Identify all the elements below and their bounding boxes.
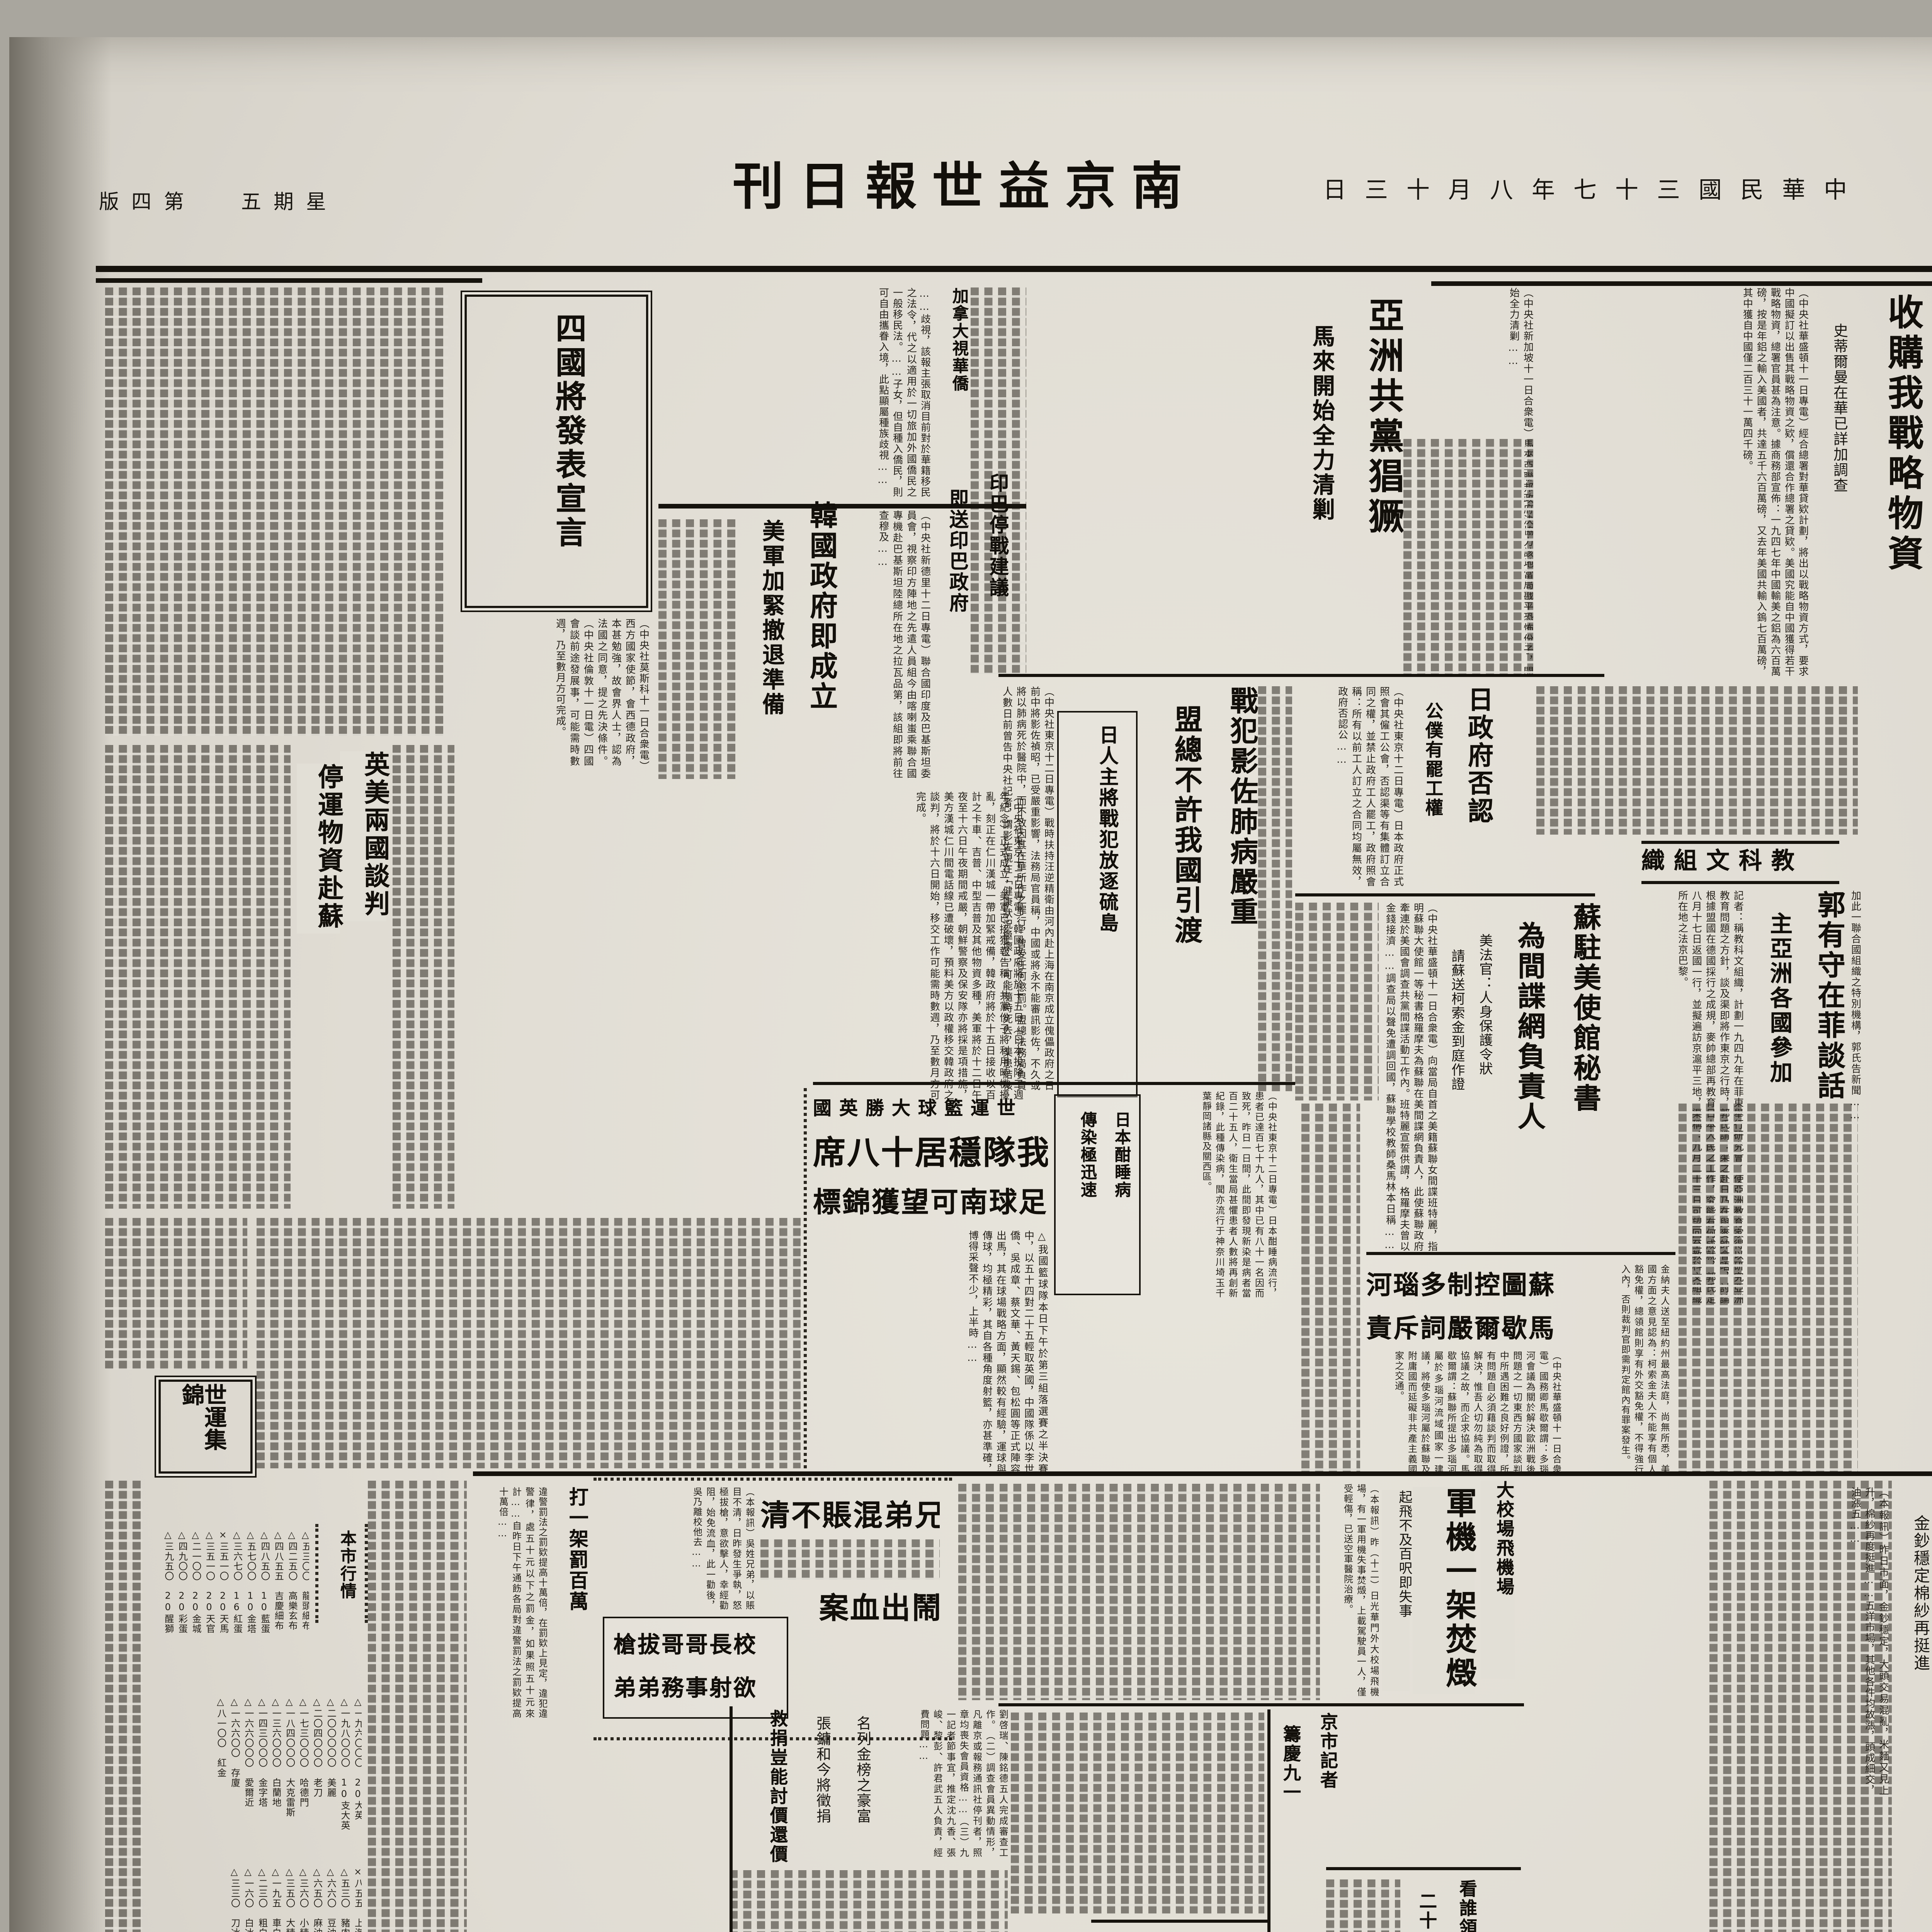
brothers-boxed-sub: 槍拔哥哥長校 弟弟務事射欲 (603, 1617, 788, 1719)
unesco-section-label: 織組文科教 (1641, 841, 1839, 884)
divider-rule (1326, 1867, 1521, 1870)
sleeping-sickness-box: 日本酣睡病 傳染極迅速 (1054, 1094, 1141, 1295)
brothers-boxed1: 槍拔哥哥長校 (614, 1628, 777, 1662)
body-text-unreadable (105, 287, 448, 736)
olympics-digest-label: 世運集錦 (190, 1383, 224, 1470)
body-text-unreadable (730, 1870, 1008, 1932)
korea-headline: 韓國政府即成立 (782, 501, 835, 764)
divider-rule (813, 1082, 1295, 1085)
japan-denies-headline: 日政府否認 (1444, 686, 1490, 856)
body-text-unreadable (958, 1484, 1320, 1700)
body-text-unreadable (105, 745, 291, 1209)
rescue-sub1: 名列金榜之豪富 (835, 1716, 869, 1855)
rescue-headline: 救捐豈能討價還價 (748, 1709, 788, 1864)
airfield-kicker: 大校場飛機場 (1481, 1481, 1515, 1679)
market-item: △一四三〇〇〇 金字塔 (256, 1697, 265, 1855)
korea-subhead: 美軍加緊撤退準備 (739, 519, 782, 782)
reporters-headline: 京市記者 (1304, 1713, 1338, 1821)
market-item: △五三〇〇 龍頭細布 (299, 1530, 309, 1685)
wavy-separator (804, 1088, 813, 1475)
market-item: △三六七〇 16紅蛋 (231, 1530, 240, 1685)
airfield-subhead: 起飛不及百呎即失事 (1382, 1490, 1410, 1691)
divider-rule (1091, 1920, 1267, 1923)
soviet-spy-body: （中央社華盛頓十一日合衆電）向當局自首之美籍蘇聯女間諜班特麗，指明蘇聯大使館一等… (1382, 903, 1437, 1252)
market-item: △四九〇〇 20彩蛋 (176, 1530, 185, 1685)
market-item: △一七三〇〇〇 哈德門 (297, 1697, 307, 1855)
market-band-2: △一九六〇〇〇 20大英△一九八〇〇〇 10支大英△二〇〇〇〇〇 美麗△二〇四〇… (145, 1697, 362, 1855)
asia-communists-headline: 亞洲共黨猖獗 (1332, 297, 1400, 668)
brothers-headline2: 案血出鬧 (819, 1586, 943, 1626)
lottery-land-subhead: 二十五日搖彩 (1406, 1892, 1437, 1932)
brothers-boxed2: 弟弟務事射欲 (614, 1671, 777, 1705)
divider-rule (998, 674, 1604, 677)
market-item: △五七〇〇 10金塔 (245, 1530, 254, 1685)
body-text-unreadable (1403, 439, 1533, 677)
section-rule (473, 1471, 1932, 1475)
body-text-unreadable (105, 1481, 142, 1932)
newspaper-page: 日三十月八年七十三國民華中 刊日報世益京南 五期星 版四第 美授權經合總署 收購… (0, 0, 1932, 1932)
market-item: △二一〇〇 20金城 (189, 1530, 199, 1685)
airfield-body: （本報訊）昨（十二）日光華門外大校場飛機場，有一軍用機失事焚燬，上載駕駛員一人，… (1326, 1484, 1379, 1697)
market-item: △一八四〇〇〇 大克雷斯 (283, 1697, 293, 1855)
danube-subhead: 責斥詞嚴爾歇馬 (1366, 1308, 1561, 1342)
weekday-label: 五期星 (241, 185, 362, 216)
market-item: △一三六〇〇〇 白蘭地 (269, 1697, 279, 1855)
us-purchase-headline: 收購我戰略物資 (1852, 294, 1920, 680)
market-band-3: ×八五五 上海火柴△五三〇 豬肉△六六〇 豆油（斤）△六五〇 麻油（斤）△三六〇… (145, 1867, 362, 1932)
lottery-land-headline: 看誰領租公地 (1444, 1879, 1478, 1932)
market-item: △五三〇 豬肉 (338, 1867, 348, 1932)
market-item: △四二五〇 高樂玄布 (286, 1530, 295, 1685)
soviet-spy-headline: 蘇駐美使館秘書 (1546, 903, 1598, 1236)
danube-headline: 河瑙多制控圖蘇 (1366, 1264, 1561, 1298)
body-text-unreadable (1295, 903, 1379, 1100)
market-band-1: △五三〇〇 龍頭細布△四二五〇 高樂玄布△四八五五 吉慶細布△四八五〇 10藍蛋… (145, 1530, 309, 1685)
japan-denies-body: （中央社東京十二日專電）日本政府正式照會其僱工公會，否認渠等有集體訂立合同之權，… (1295, 686, 1403, 887)
market-item: △三五〇 大精油 (283, 1867, 293, 1932)
market-item: △三三〇 刀冰青 (228, 1867, 238, 1932)
page-number: 版四第 (99, 185, 223, 216)
market-item: △一九八〇〇〇 10支大英 (338, 1697, 348, 1855)
four-powers-headline-text: 四國將發表宣言 (532, 312, 584, 590)
body-text-unreadable (368, 1481, 467, 1932)
masthead-title: 刊日報世益京南 (733, 145, 1212, 229)
sleeping-sickness-body: （中央社東京十二日專電）日本酣睡病流行，患者已達百七十九人，其中已有八十一名因而… (1144, 1091, 1277, 1298)
soviet-spy-sub1: 美法官：人身保護令狀 (1465, 934, 1490, 1243)
divider-rule (1295, 893, 1595, 896)
soviet-spy-sub2: 請蘇送柯索金到庭作證 (1440, 949, 1462, 1250)
danube-body: （中央社華盛頓十一日合衆電）國務卿馬歇爾謂：多瑙河會議為關於解決歐洲戰後問題之一… (1366, 1351, 1561, 1475)
war-criminal-headline: 戰犯影佐肺病嚴重 (1202, 686, 1255, 1073)
body-text-unreadable (1258, 686, 1292, 1091)
paper-sheet: 日三十月八年七十三國民華中 刊日報世益京南 五期星 版四第 美授權經合總署 收購… (9, 37, 1932, 1932)
market-item: △一九五 車白糖 (269, 1867, 279, 1932)
brothers-body: （本報訊）吳姓兄弟，以賬目不清，日昨發生爭執，怒極拔槍，意欲擊人，幸經勸阻，始免… (603, 1487, 754, 1611)
war-criminal-body: （中央社東京十二日專電）戰時扶持汪逆精衛由河內赴上海在南京成立傀儡政府之日前中將… (998, 686, 1054, 1091)
olympics-kicker: 國英勝大球籃運世 (813, 1094, 1045, 1122)
masthead-rule-3 (1431, 281, 1932, 285)
india-pak-subhead: 即送印巴政府 (934, 488, 968, 631)
body-text-unreadable (658, 519, 736, 779)
market-item: △三五一〇 20天官 (203, 1530, 213, 1685)
market-table-label: 本市行情 (328, 1530, 355, 1617)
body-text-unreadable (1326, 1879, 1400, 1932)
us-purchase-body: （中央社華盛頓十一日專電）經合總署對華貸欵計劃，將出以戰略物資方式，要求中國擬訂… (1536, 287, 1808, 677)
soviet-spy-headline2: 為間諜網負責人 (1493, 921, 1543, 1246)
body-text-unreadable (105, 1218, 247, 1369)
airfield-headline: 軍機一架焚燬 (1413, 1487, 1475, 1694)
olympics-body: △我國籃球隊本日下午於第三組落選賽之半決賽中，以五十四對二十五輕取英國，中國隊係… (813, 1230, 1048, 1475)
market-item: △一六六〇〇 存廈 (228, 1697, 238, 1855)
us-purchase-subhead: 史蒂爾曼在華已詳加調查 (1815, 323, 1845, 679)
body-text-unreadable (1679, 1104, 1858, 1471)
body-text-unreadable (1301, 1104, 1360, 1475)
uk-us-headline: 英美兩國談判 (340, 751, 386, 921)
fight-fine-body: 違警罰法之罰欵提高十萬倍，在罰欵上見定，違犯違警律，處五十元以下之罰金，如果照五… (473, 1487, 547, 1719)
olympics-headline: 席八十居穩隊我 (813, 1128, 1048, 1172)
japan-denies-subhead: 公僕有罷工權 (1406, 702, 1444, 872)
reporters-subhead: 籌慶九一 (1270, 1725, 1301, 1833)
date-line: 日三十月八年七十三國民華中 (1323, 173, 1929, 213)
rescue-sub2: 張鏞和今將徵捐 (798, 1716, 828, 1855)
fight-fine-headline: 打一架罰百萬 (550, 1487, 587, 1620)
canada-body: ……歧視，該報主張取消目前對於華籍移民之法令，代之以適用於一切旅加外國僑民之一般… (658, 287, 930, 498)
market-item: △一九六〇〇〇 20大英 (352, 1697, 362, 1855)
body-text-unreadable (393, 745, 454, 1209)
market-item: △三六〇 小精油 (297, 1867, 307, 1932)
war-criminal-headline2: 盟總不許我國引渡 (1150, 705, 1199, 1076)
asia-communists-subhead: 馬來開始全力清剿 (1295, 325, 1332, 680)
body-text-unreadable (257, 1218, 801, 1468)
market-item: △一六〇 白冰糖 (242, 1867, 252, 1932)
masthead-rule (96, 266, 1932, 272)
four-powers-body: （中央社莫斯科十一日合衆電）西方國家使節，會西德政府，本甚勉強，故會界人士，認為… (461, 618, 649, 767)
sleeping-sickness-subhead: 傳染極迅速 (1065, 1111, 1096, 1278)
market-item: ×八五五 上海火柴 (352, 1867, 362, 1932)
bighead-body: （本報訊）昨日市面，金鈔穩定，大頭交易混亂，米麵又見上升，棉紗再度挺進……五洋市… (1771, 1487, 1889, 1796)
india-pak-body: （中央社新德里十二日專電）聯合國印度及巴基斯坦委員會，視察印方陣地之先遣人員組今… (841, 510, 930, 779)
us-purchase-kicker: 美授權經合總署 (1926, 287, 1932, 550)
sleeping-sickness-headline: 日本酣睡病 (1099, 1111, 1130, 1278)
body-text-unreadable (1536, 686, 1858, 835)
market-item: ×三五一〇 20天馬 (217, 1530, 226, 1685)
divider-rule (998, 1703, 1524, 1706)
market-item: △六五〇 麻油（斤） (311, 1867, 320, 1932)
danube-side-body: 金納夫人送至紐約州最高法庭，尚無所悉，美國方面之意見認為：柯索金夫人不能享有個人… (1570, 1264, 1669, 1475)
market-item: △二〇〇〇〇〇 美麗 (325, 1697, 334, 1855)
market-item: △二三〇 粗白砂 (256, 1867, 265, 1932)
column-rule (1267, 1709, 1270, 1932)
brothers-headline: 清不賬混弟兄 (760, 1493, 940, 1533)
bighead-subhead: 金鈔穩定棉紗再挺進 (1898, 1515, 1929, 1932)
olympics-subhead: 標錦獲望可南球足 (813, 1181, 1048, 1221)
body-text-unreadable (760, 1539, 940, 1580)
market-item: △四八五五 吉慶細布 (272, 1530, 282, 1685)
body-text-unreadable (1011, 1713, 1264, 1913)
market-item: △三九五〇 20醒獅 (162, 1530, 172, 1685)
market-item: △八一〇〇 紅金 (214, 1697, 224, 1855)
market-item: △二〇四〇〇〇 老刀 (311, 1697, 320, 1855)
market-item: △四八五〇 10藍蛋 (258, 1530, 268, 1685)
olympics-digest-box: 世運集錦 (155, 1376, 257, 1478)
rescue-body: 劉啓瑞、陳銘德五人完成審查工作。（二）調查會員異動情形，凡離京或報務通訊社停刊者… (875, 1709, 1008, 1858)
market-table-label-box: 本市行情 (315, 1524, 368, 1623)
war-criminal-boxed-sub: 日人主將戰犯放逐硫島 (1057, 711, 1138, 1097)
uk-us-subhead: 停運物資赴蘇 (297, 764, 340, 934)
market-item: △一六六〇〇〇 愛爾近 (242, 1697, 252, 1855)
korea-body: （中央社東京十二日專電）韓國政府將於十五日（日本投降三週年紀念）正式成立，美軍已… (658, 791, 1023, 1100)
masthead-rule-2 (96, 278, 482, 282)
canada-kicker: 加拿大視華僑 (934, 287, 968, 457)
market-item: △六六〇 豆油（斤） (325, 1867, 334, 1932)
divider-rule (1366, 1252, 1675, 1255)
india-pak-headline: 印巴停戰建議 (971, 473, 1008, 615)
war-criminal-boxed-sub-text: 日人主將戰犯放逐硫島 (1077, 725, 1117, 1083)
column-rule (730, 1706, 733, 1932)
binding-shadow (9, 37, 111, 1932)
